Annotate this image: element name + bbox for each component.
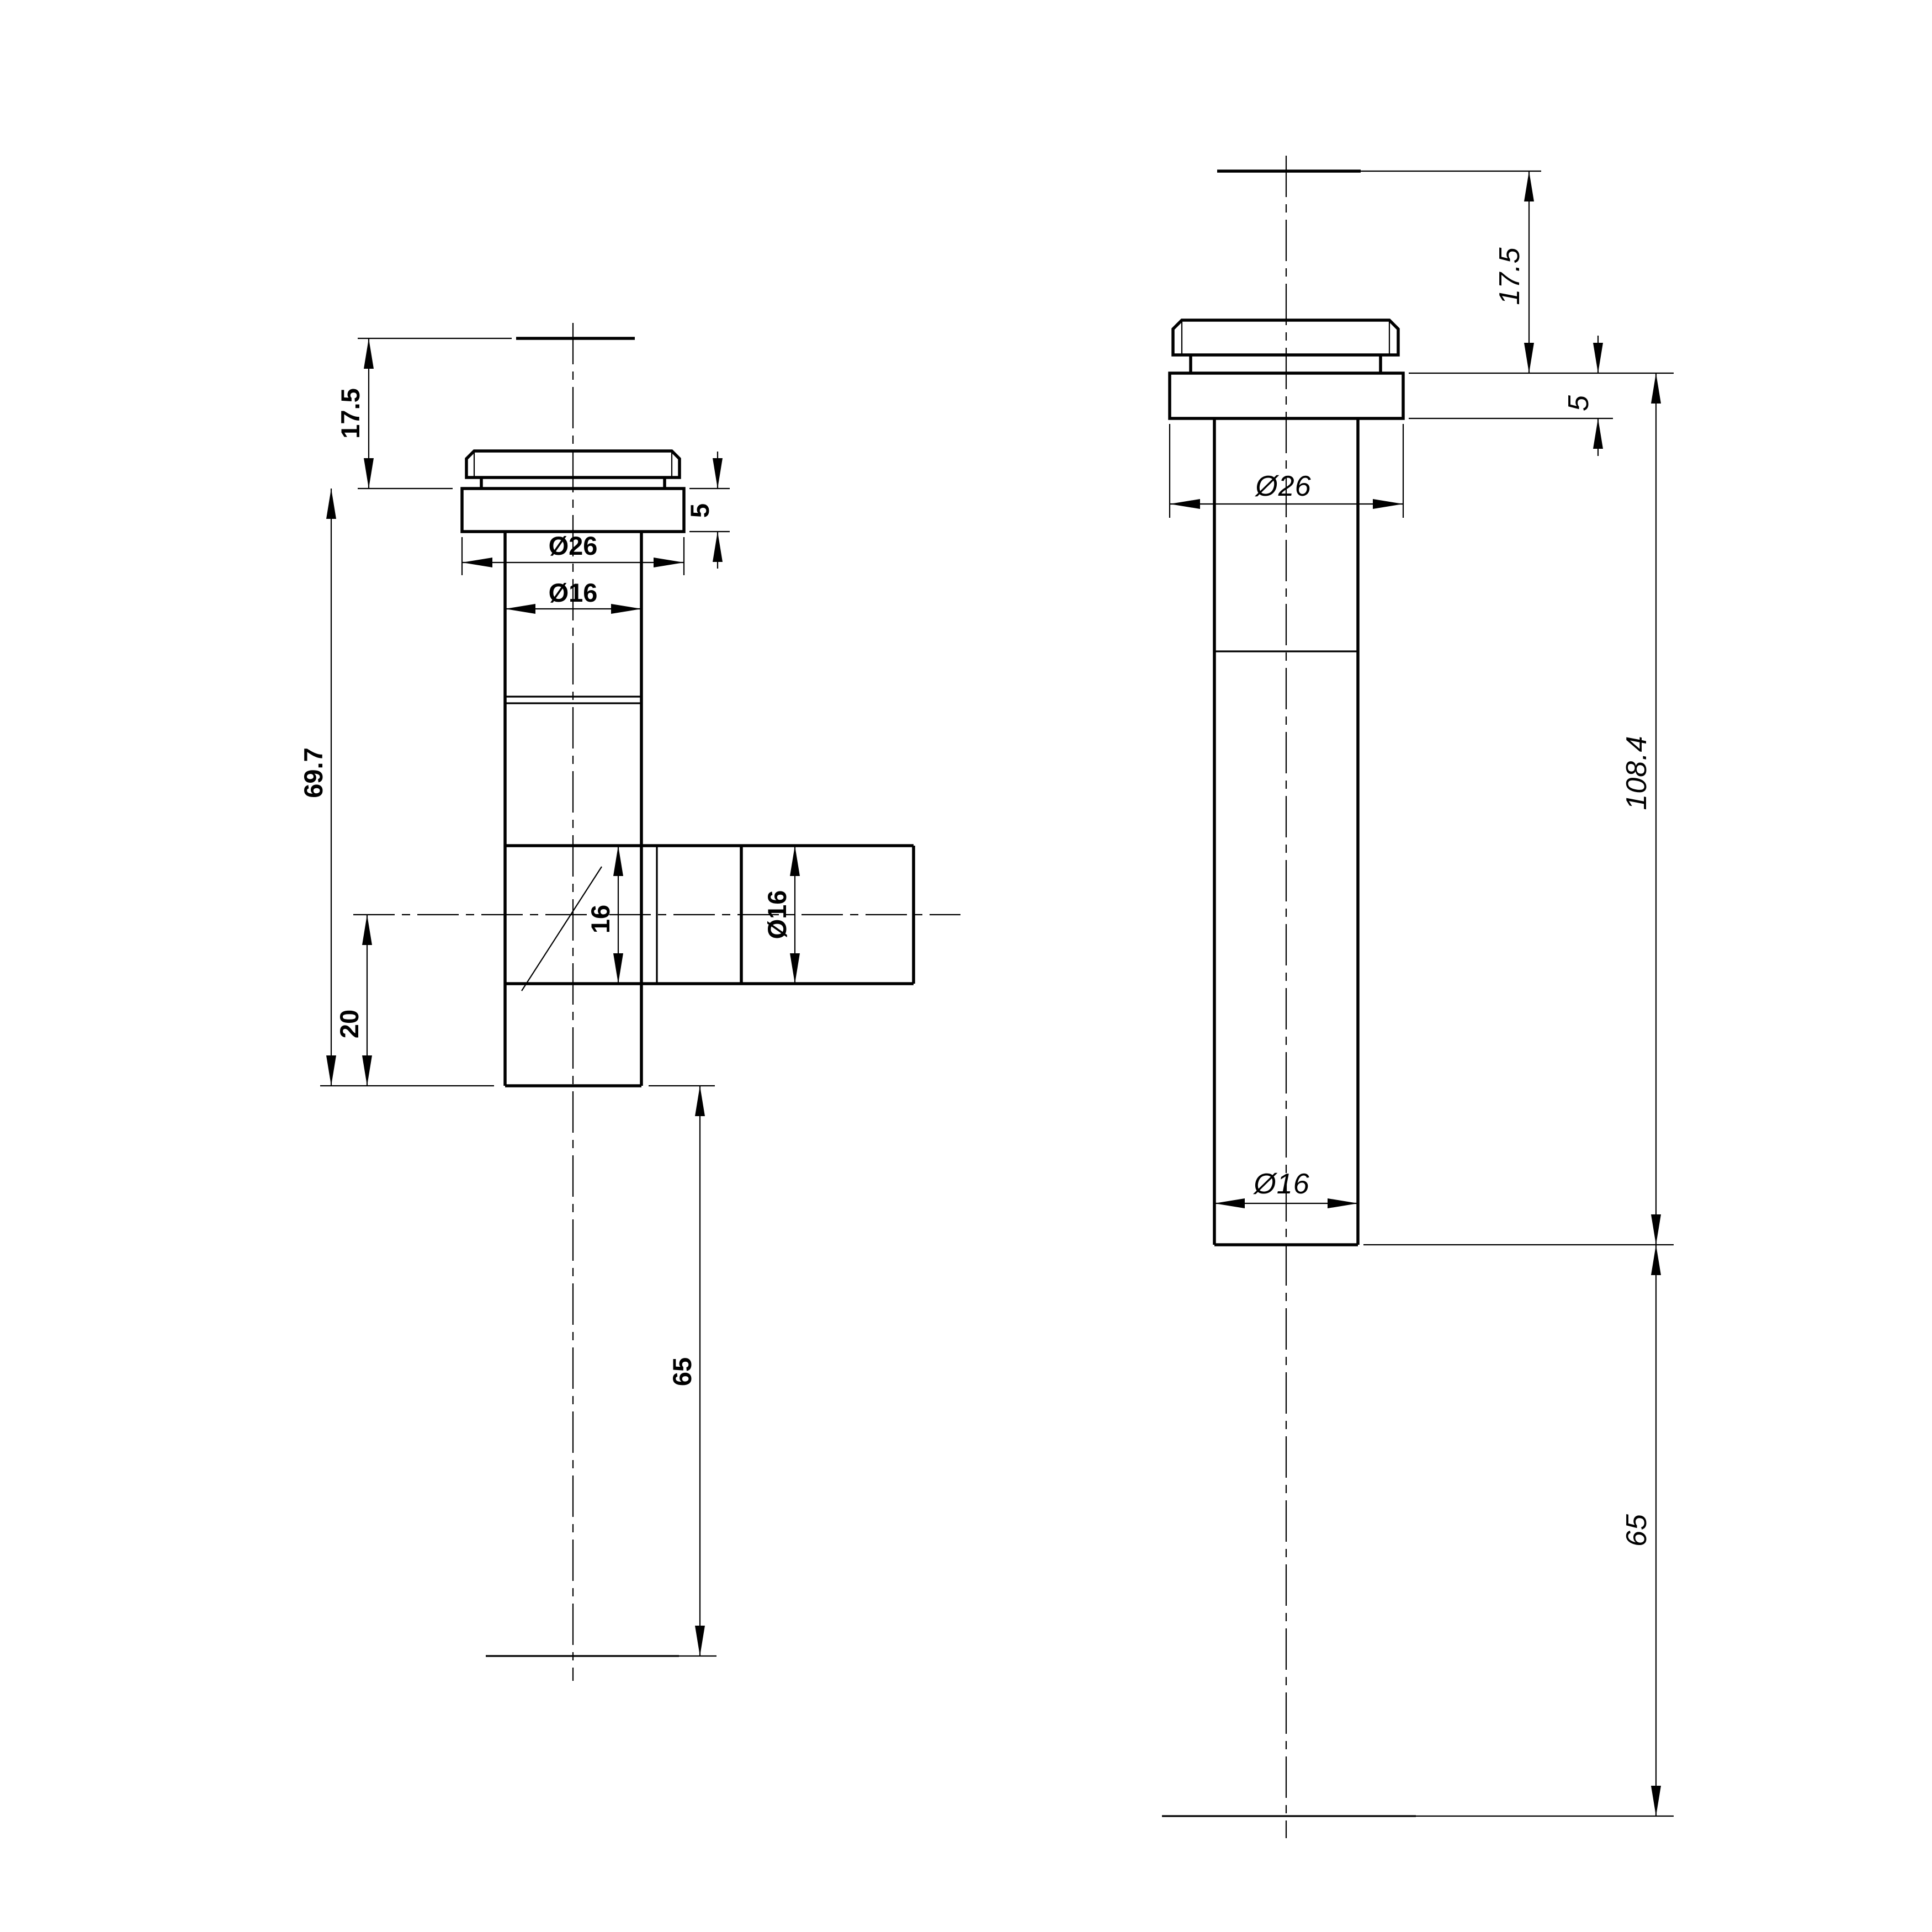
left-dim-branch-offset: 20	[335, 915, 372, 1086]
right-label-body-length: 108.4	[1621, 735, 1653, 810]
left-label-branch-offset: 20	[335, 1010, 364, 1038]
right-label-flange-height: 5	[1563, 395, 1595, 411]
right-label-cap-height: 17.5	[1494, 247, 1526, 305]
right-label-pipe-diameter: Ø16	[1252, 1168, 1309, 1200]
left-dim-cap-height: 17.5	[336, 338, 453, 489]
left-centerlines	[353, 323, 960, 1681]
right-dim-cap-height: 17.5	[1494, 171, 1534, 373]
left-dim-tail-extension: 65	[649, 1086, 715, 1656]
left-branch-outline	[505, 846, 914, 991]
right-dim-flange-height: 5	[1409, 336, 1674, 456]
right-label-flange-diameter: Ø26	[1254, 470, 1311, 502]
left-dim-pipe-diameter: Ø16	[505, 578, 641, 614]
left-dim-flange-height: 5	[685, 452, 730, 569]
left-label-branch-bore: 16	[586, 905, 615, 933]
cad-drawing: 17.5 69.7 20 Ø26	[0, 0, 1932, 1932]
left-label-cap-height: 17.5	[336, 388, 365, 438]
drawing-canvas: 17.5 69.7 20 Ø26	[0, 0, 1932, 1932]
left-label-flange-diameter: Ø26	[549, 531, 598, 560]
left-view: 17.5 69.7 20 Ø26	[299, 323, 960, 1681]
left-label-body-length: 69.7	[299, 747, 328, 798]
left-label-pipe-diameter: Ø16	[549, 578, 598, 607]
left-dim-body-length: 69.7	[299, 489, 494, 1086]
right-view: 17.5 Ø26 5 108.4	[1162, 156, 1674, 1838]
right-label-tail-extension: 65	[1621, 1514, 1653, 1547]
left-label-flange-height: 5	[685, 503, 714, 518]
left-label-branch-diameter: Ø16	[762, 890, 792, 940]
left-label-tail-extension: 65	[667, 1357, 697, 1386]
right-dim-body-length: 108.4	[1621, 373, 1661, 1245]
right-dim-tail-extension: 65	[1363, 1245, 1674, 1816]
